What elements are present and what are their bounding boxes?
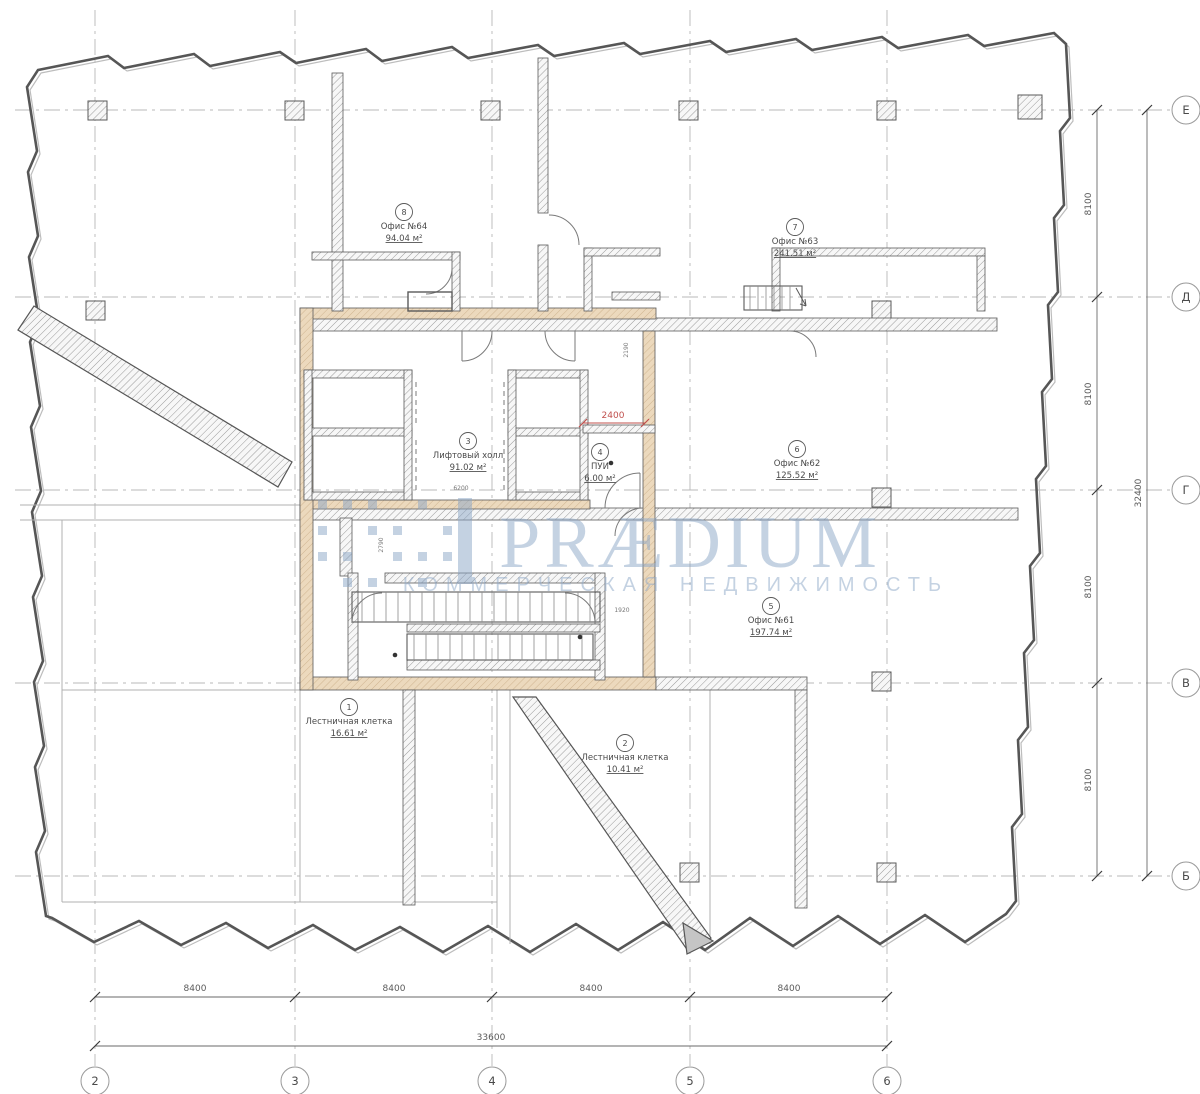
lift-door-dashes [416, 382, 504, 490]
lift-bank-left-e [404, 370, 412, 500]
wall-closet-v [584, 248, 592, 311]
column [1018, 95, 1042, 119]
wall-top-center-b [538, 245, 548, 311]
west-corridor-lines [20, 505, 300, 520]
wall-stairblock-west [340, 518, 352, 576]
room-number: 5 [768, 602, 773, 611]
wall-room7-right [977, 256, 985, 311]
watermark-brand: PRÆDIUM [499, 502, 881, 584]
grid-bubble-row-e: Е [1172, 96, 1200, 124]
lift-bank-right-top [508, 370, 588, 378]
column [481, 101, 500, 120]
lift-bank-right-mid [508, 428, 588, 436]
room-label-stair-2: 2 Лестничная клетка 10.41 м² [581, 735, 668, 776]
grid-bubble-row-v: В [1172, 669, 1200, 697]
grid-bubble-col-6: 6 [873, 1067, 901, 1094]
grid-bubble-row-g: Г [1172, 476, 1200, 504]
room-number: 4 [597, 448, 602, 457]
wall-stairs-mid [407, 624, 600, 632]
lift-bank-left-bot [304, 492, 412, 500]
column [872, 672, 891, 691]
dim-span-e-d: 8100 [1084, 192, 1094, 215]
dim-door-b: 1920 [614, 607, 629, 614]
wall-east-office [795, 690, 807, 908]
wall-closet-h2 [612, 292, 660, 300]
wall-stairs-bottom [407, 660, 600, 670]
door-arc [545, 331, 575, 361]
dim-span-d-g: 8100 [1084, 382, 1094, 405]
grid-bubble-row-d: Д [1172, 283, 1200, 311]
room-label-office-63: 7 Офис №63 241.51 м² [772, 219, 819, 260]
room-name: Офис №63 [772, 237, 819, 247]
stair-treads [750, 286, 790, 310]
room-name: Офис №61 [748, 616, 795, 626]
room-area: 16.61 м² [331, 729, 368, 739]
room-area: 197.74 м² [750, 628, 792, 638]
svg-text:4: 4 [488, 1074, 495, 1088]
svg-text:3: 3 [291, 1074, 298, 1088]
lift-bank-left-mid [304, 428, 412, 436]
stair-dot [578, 635, 583, 640]
room-label-office-62: 6 Офис №62 125.52 м² [774, 441, 821, 482]
dim-hall-width: 6200 [453, 485, 468, 492]
wall-core-south-gray [656, 677, 807, 690]
room-label-stair-1: 1 Лестничная клетка 16.61 м² [305, 699, 392, 740]
column [88, 101, 107, 120]
lift-bank-left-top [304, 370, 412, 378]
dim-span-4-5: 8400 [580, 984, 603, 994]
svg-text:В: В [1182, 676, 1190, 690]
room-area: 94.04 м² [386, 234, 423, 244]
room-number: 1 [346, 703, 351, 712]
door-arc [790, 331, 816, 357]
ramps [18, 306, 713, 954]
dim-span-g-v: 8100 [1084, 575, 1094, 598]
red-dim-label: 2400 [602, 411, 625, 421]
room-area: 241.51 м² [774, 249, 816, 259]
door-arc [426, 268, 452, 294]
svg-text:2: 2 [91, 1074, 98, 1088]
room-number: 7 [792, 223, 797, 232]
svg-text:Е: Е [1182, 103, 1189, 117]
wall-closet-h [584, 248, 660, 256]
room-name: Лестничная клетка [305, 717, 392, 727]
room-number: 6 [794, 445, 799, 454]
stair-dot [393, 653, 398, 658]
wall-top-center-a [538, 58, 548, 213]
dim-span-3-4: 8400 [383, 984, 406, 994]
room-label-lift-hall: 3 Лифтовый холл 91.02 м² [433, 433, 503, 474]
lift-bank-right-w [508, 370, 516, 500]
room-number: 8 [401, 208, 406, 217]
column [285, 101, 304, 120]
stair-run-2 [407, 634, 593, 660]
column [86, 301, 105, 320]
room-number: 2 [622, 739, 627, 748]
floor-plan-drawing: PRÆDIUM КОММЕРЧЕСКАЯ НЕДВИЖИМОСТЬ 1 Лест… [0, 0, 1200, 1094]
dim-span-2-3: 8400 [184, 984, 207, 994]
column [679, 101, 698, 120]
dim-total-height: 32400 [1134, 478, 1144, 507]
ramp-northwest [18, 306, 292, 487]
bottom-dimensions: 8400 8400 8400 8400 33600 [90, 984, 892, 1051]
right-dimensions: 8100 8100 8100 8100 32400 [1084, 105, 1152, 881]
wall-room8-v [452, 252, 460, 311]
stair-run-1 [352, 592, 600, 622]
svg-text:Б: Б [1182, 869, 1190, 883]
grid-bubble-col-4: 4 [478, 1067, 506, 1094]
dim-span-5-6: 8400 [778, 984, 801, 994]
room-name: Лестничная клетка [581, 753, 668, 763]
svg-text:Г: Г [1182, 483, 1189, 497]
room-area: 91.02 м² [450, 463, 487, 473]
grid-bubble-col-3: 3 [281, 1067, 309, 1094]
door-arc [549, 215, 579, 245]
grid-bubble-col-5: 5 [676, 1067, 704, 1094]
floor-plan-sheet: PRÆDIUM КОММЕРЧЕСКАЯ НЕДВИЖИМОСТЬ 1 Лест… [0, 0, 1200, 1094]
wall-stair1-east [403, 690, 415, 905]
room-label-office-61: 5 Офис №61 197.74 м² [748, 598, 795, 639]
grid-bubble-row-b: Б [1172, 862, 1200, 890]
stair-run-1-treads [362, 592, 590, 622]
wall-core-north-tan [300, 308, 656, 319]
column [872, 301, 891, 320]
wall-north-pier [332, 73, 343, 311]
wall-corridor-north [300, 318, 997, 331]
room-label-office-64: 8 Офис №64 94.04 м² [381, 204, 428, 245]
svg-text:Д: Д [1182, 290, 1191, 304]
lift-bank-left-w [304, 370, 312, 500]
ramp-south [513, 697, 711, 951]
room-name: ПУИ [591, 462, 609, 472]
room-name: Офис №64 [381, 222, 428, 232]
room-number: 3 [465, 437, 470, 446]
pui-dot [609, 461, 614, 466]
column [877, 863, 896, 882]
door-arc [565, 593, 595, 623]
room-area: 125.52 м² [776, 471, 818, 481]
dim-stair-w: 2790 [378, 537, 385, 552]
room-name: Офис №62 [774, 459, 821, 469]
dim-total-width: 33600 [477, 1033, 506, 1043]
column [877, 101, 896, 120]
wall-stairs-left [348, 573, 358, 680]
svg-text:5: 5 [686, 1074, 693, 1088]
dim-span-v-b: 8100 [1084, 768, 1094, 791]
stair-run-2-treads [414, 634, 582, 660]
room-name: Лифтовый холл [433, 451, 503, 461]
wall-pui-top [583, 425, 655, 433]
wall-room8-h [312, 252, 460, 260]
column [680, 863, 699, 882]
door-arc [462, 331, 492, 361]
dim-door-a: 2190 [623, 342, 630, 357]
lift-bank-right-bot [508, 492, 588, 500]
room-area: 10.41 м² [607, 765, 644, 775]
grid-bubble-col-2: 2 [81, 1067, 109, 1094]
room-area: 6.00 м² [584, 474, 615, 484]
svg-text:6: 6 [883, 1074, 890, 1088]
watermark-tagline: КОММЕРЧЕСКАЯ НЕДВИЖИМОСТЬ [403, 574, 949, 596]
